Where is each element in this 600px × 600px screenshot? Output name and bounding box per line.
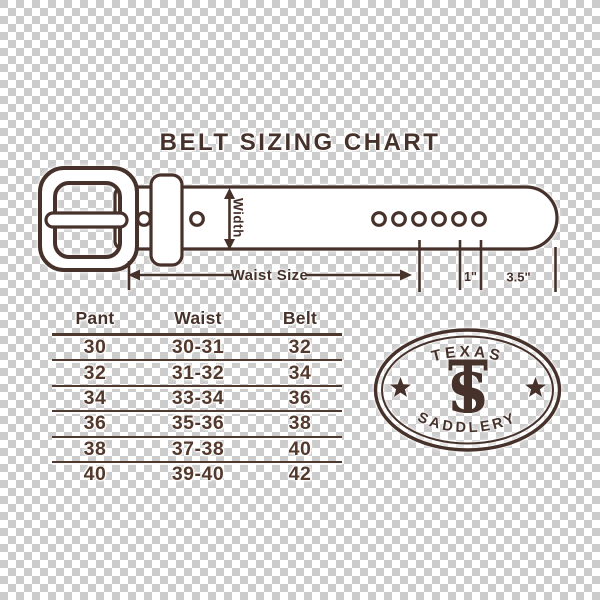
- table-cell: 38: [52, 438, 138, 461]
- belt-sizing-chart: BELT SIZING CHART Width: [0, 0, 600, 600]
- table-cell: 38: [258, 412, 342, 435]
- column-header-pant: Pant: [52, 308, 138, 329]
- table-cell: 40: [52, 463, 138, 486]
- belt-hole: [138, 213, 151, 226]
- table-cell: 36: [52, 412, 138, 435]
- monogram-s: S: [448, 360, 488, 425]
- table-row: 38 37-38 40: [52, 438, 342, 463]
- belt-hole: [191, 213, 204, 226]
- belt-hole: [393, 213, 406, 226]
- table-header-row: Pant Waist Belt: [52, 304, 342, 336]
- table-cell: 30: [52, 336, 138, 359]
- belt-keeper-icon: [151, 175, 182, 265]
- table-cell: 32: [52, 362, 138, 385]
- belt-hole: [453, 213, 466, 226]
- belt-hole: [433, 213, 446, 226]
- star-icon: [390, 377, 411, 397]
- table-cell: 35-36: [138, 412, 258, 435]
- table-row: 34 33-34 36: [52, 387, 342, 412]
- table-row: 32 31-32 34: [52, 361, 342, 386]
- column-header-belt: Belt: [258, 308, 342, 329]
- belt-prong-icon: [46, 213, 127, 227]
- waist-size-label: Waist Size: [231, 267, 309, 284]
- table-cell: 30-31: [138, 336, 258, 359]
- table-cell: 37-38: [138, 438, 258, 461]
- table-cell: 40: [258, 438, 342, 461]
- table-cell: 34: [258, 362, 342, 385]
- table-row: 36 35-36 38: [52, 412, 342, 437]
- table-cell: 34: [52, 387, 138, 410]
- table-cell: 36: [258, 387, 342, 410]
- star-icon: [525, 377, 546, 397]
- belt-hole: [473, 213, 486, 226]
- column-header-waist: Waist: [138, 308, 258, 329]
- table-cell: 33-34: [138, 387, 258, 410]
- table-cell: 39-40: [138, 463, 258, 486]
- hole-spacing-label: 1": [464, 270, 477, 284]
- sizing-table: Pant Waist Belt 30 30-31 32 32 31-32 34 …: [52, 304, 342, 486]
- table-row: 40 39-40 42: [52, 463, 342, 486]
- belt-hole: [413, 213, 426, 226]
- table-cell: 31-32: [138, 362, 258, 385]
- texas-saddlery-logo: TEXAS SADDLERY S: [370, 323, 566, 455]
- table-cell: 32: [258, 336, 342, 359]
- belt-hole: [373, 213, 386, 226]
- ts-monogram-icon: S: [448, 360, 488, 426]
- table-row: 30 30-31 32: [52, 336, 342, 361]
- table-cell: 42: [258, 463, 342, 486]
- tip-length-label: 3.5": [506, 270, 530, 285]
- belt-diagram: Width Waist Size 1" 3.5": [25, 153, 575, 303]
- width-label: Width: [231, 198, 246, 238]
